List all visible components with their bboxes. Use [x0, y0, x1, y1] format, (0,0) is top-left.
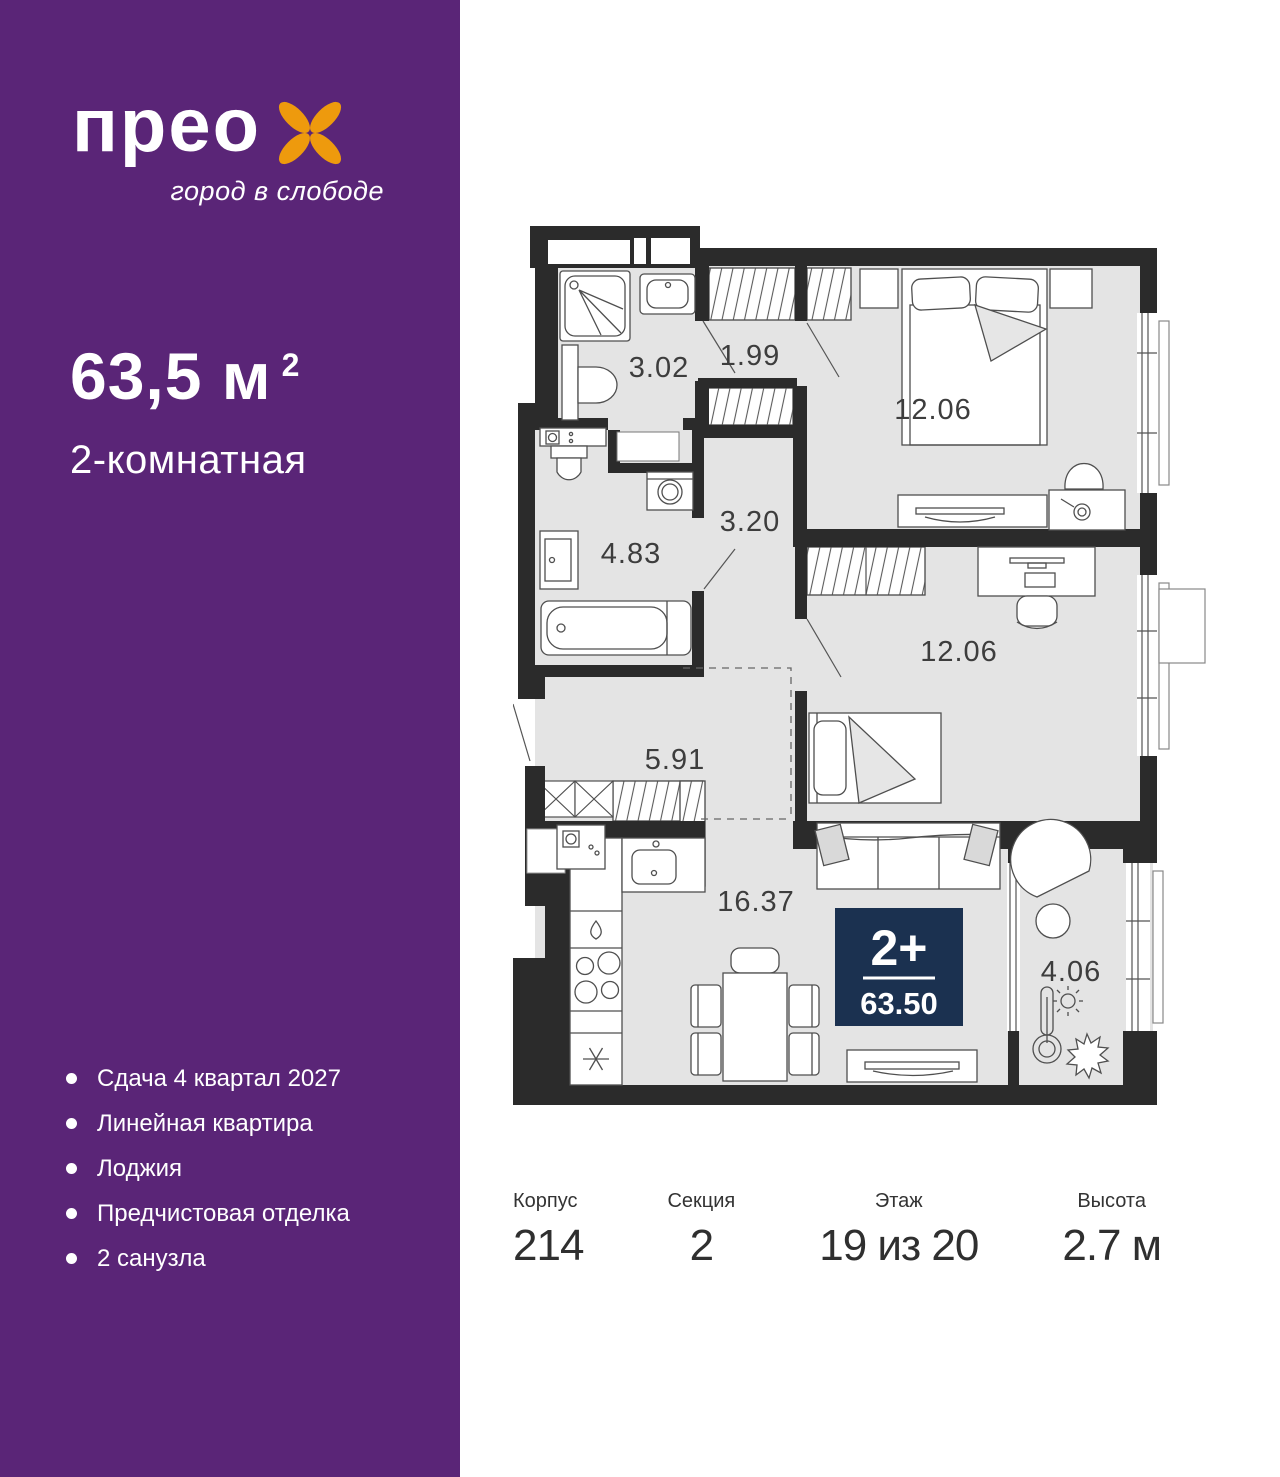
washing-machine — [647, 472, 693, 510]
bathroom-counter — [540, 428, 606, 446]
room-label-wardrobe-hall: 1.99 — [720, 340, 780, 372]
brand-tagline: город в слободе — [72, 176, 384, 207]
bullet-dot-icon — [66, 1163, 77, 1174]
feature-item: Лоджия — [66, 1146, 350, 1191]
apartment-area: 63,5 м2 — [70, 338, 300, 414]
kitchen-sink-unit — [622, 838, 705, 892]
room-label-kitchen-living: 16.37 — [717, 886, 795, 918]
room-label-hallway: 5.91 — [645, 744, 705, 776]
sink — [640, 274, 695, 314]
dresser — [898, 495, 1047, 527]
area-value: 63,5 м — [70, 339, 272, 413]
feature-item: Предчистовая отделка — [66, 1191, 350, 1236]
room-label-inner-hall: 3.20 — [720, 506, 780, 538]
room-label-loggia: 4.06 — [1041, 956, 1101, 988]
apartment-card-page: прео город в слободе 63,5 м2 2-комнатная… — [0, 0, 1280, 1477]
bullet-dot-icon — [66, 1073, 77, 1084]
kitchen-wall-box — [557, 825, 605, 869]
area-sup: 2 — [282, 347, 301, 383]
floorplan: 3.02 1.99 3.20 4.83 12.06 12.06 5.91 16.… — [513, 221, 1213, 1106]
detail-height: Высота 2.7 м — [1062, 1190, 1161, 1271]
badge-rooms: 2+ — [870, 920, 927, 976]
bathtub — [541, 601, 691, 655]
detail-section: Секция 2 — [667, 1190, 735, 1271]
feature-list: Сдача 4 квартал 2027 Линейная квартира Л… — [66, 1056, 350, 1281]
brand-logo-text: прео — [72, 88, 261, 164]
kitchen-counter — [570, 838, 622, 1085]
sidebar: прео город в слободе 63,5 м2 2-комнатная… — [0, 0, 460, 1477]
floorplan-svg: 3.02 1.99 3.20 4.83 12.06 12.06 5.91 16.… — [513, 221, 1213, 1106]
apartment-type: 2-комнатная — [70, 438, 307, 483]
bullet-dot-icon — [66, 1118, 77, 1129]
details-row: Корпус 214 Секция 2 Этаж 19 из 20 Высота… — [513, 1190, 1161, 1271]
loggia-table — [1036, 904, 1070, 938]
feature-item: 2 санузла — [66, 1236, 350, 1281]
detail-floor: Этаж 19 из 20 — [819, 1190, 978, 1271]
feature-item: Линейная квартира — [66, 1101, 350, 1146]
room-label-bedroom-2: 12.06 — [920, 636, 998, 668]
bullet-dot-icon — [66, 1253, 77, 1264]
flower-icon — [271, 94, 349, 172]
badge-area: 63.50 — [860, 986, 938, 1021]
bathroom-sink-cabinet — [540, 531, 578, 589]
feature-item: Сдача 4 квартал 2027 — [66, 1056, 350, 1101]
bullet-dot-icon — [66, 1208, 77, 1219]
room-label-bedroom-1: 12.06 — [894, 394, 972, 426]
shower — [560, 271, 630, 341]
tv-stand — [847, 1050, 977, 1082]
sofa — [815, 823, 1000, 889]
area-badge: 2+ 63.50 — [835, 908, 963, 1026]
detail-building: Корпус 214 — [513, 1190, 583, 1271]
room-label-shower-bathroom: 3.02 — [629, 352, 689, 384]
bed-single — [809, 713, 941, 803]
room-label-bathroom: 4.83 — [601, 538, 661, 570]
brand-logo: прео город в слободе — [72, 88, 384, 207]
